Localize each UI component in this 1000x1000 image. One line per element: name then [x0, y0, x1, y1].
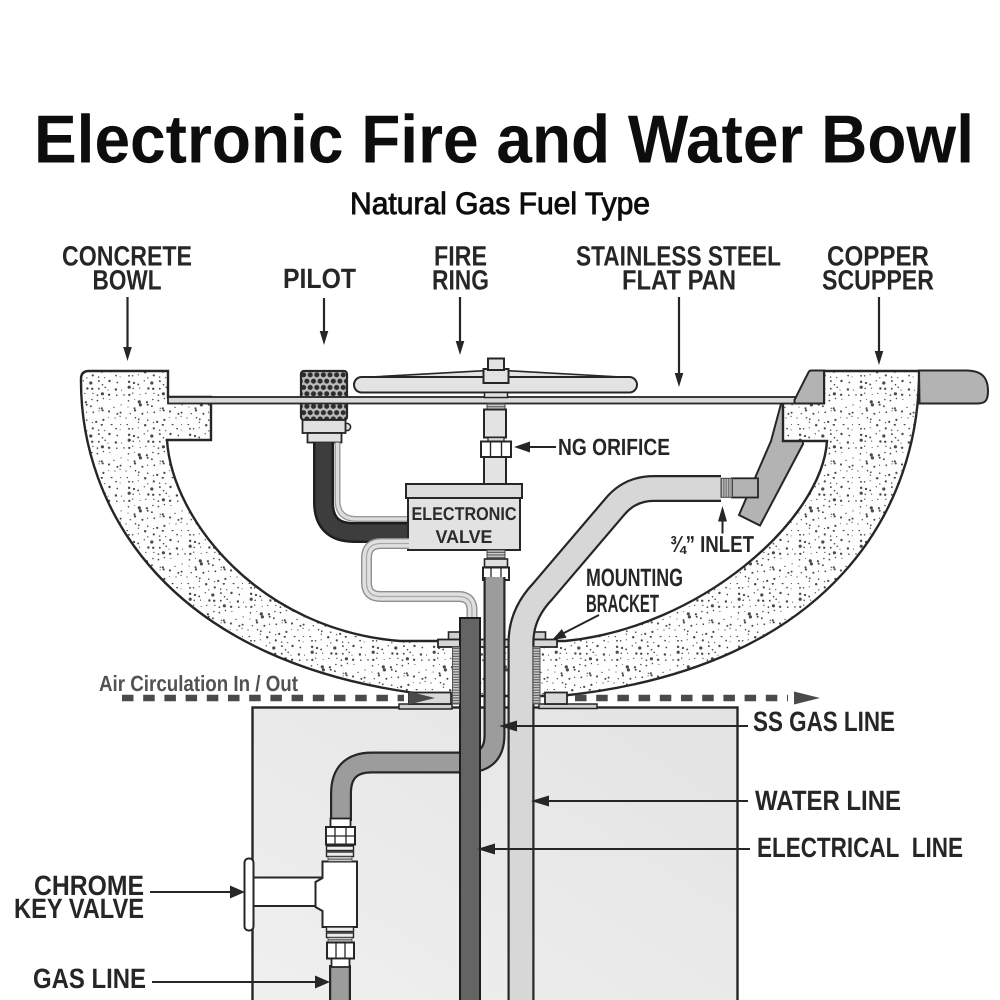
svg-text:WATER LINE: WATER LINE — [755, 785, 901, 816]
svg-text:KEY VALVE: KEY VALVE — [14, 893, 144, 924]
svg-text:SCUPPER: SCUPPER — [822, 265, 934, 296]
svg-text:Air Circulation In / Out: Air Circulation In / Out — [99, 671, 299, 696]
svg-text:MOUNTING: MOUNTING — [586, 564, 683, 592]
svg-text:BOWL: BOWL — [93, 265, 162, 296]
svg-text:PILOT: PILOT — [283, 263, 356, 294]
svg-text:SS GAS LINE: SS GAS LINE — [753, 706, 895, 737]
svg-text:ELECTRONIC: ELECTRONIC — [412, 503, 517, 524]
svg-text:RING: RING — [432, 265, 489, 296]
svg-text:¾” INLET: ¾” INLET — [670, 531, 754, 557]
svg-text:BRACKET: BRACKET — [586, 590, 659, 618]
svg-text:Electronic Fire and Water Bowl: Electronic Fire and Water Bowl — [34, 102, 974, 178]
svg-text:GAS LINE: GAS LINE — [33, 963, 146, 994]
svg-text:NG ORIFICE: NG ORIFICE — [558, 434, 670, 460]
svg-text:ELECTRICAL LINE: ELECTRICAL LINE — [757, 832, 963, 863]
svg-text:FLAT PAN: FLAT PAN — [622, 265, 736, 296]
svg-text:Natural Gas Fuel Type: Natural Gas Fuel Type — [350, 186, 650, 221]
svg-text:VALVE: VALVE — [436, 526, 493, 547]
